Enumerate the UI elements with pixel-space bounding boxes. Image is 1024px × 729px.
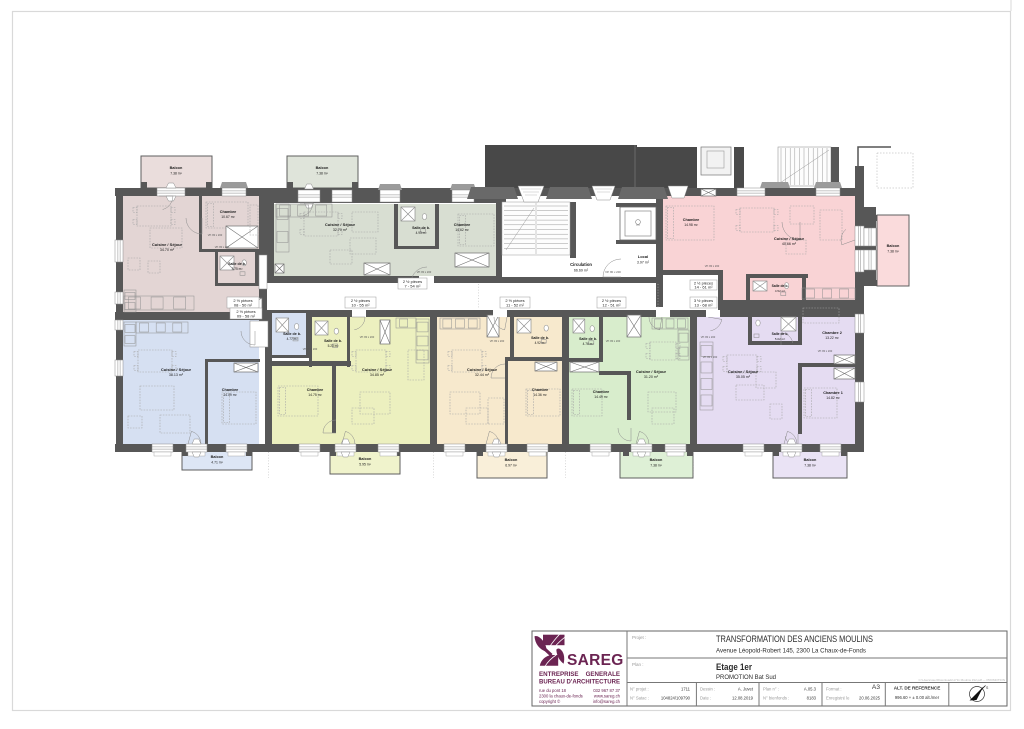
svg-text:VP. 80 x 200: VP. 80 x 200 (705, 264, 720, 268)
svg-text:Date :: Date : (700, 696, 711, 701)
svg-text:1711: 1711 (681, 687, 691, 692)
svg-text:14.62 m²: 14.62 m² (455, 228, 469, 232)
svg-text:Chambre: Chambre (307, 388, 323, 392)
svg-text:996.60 + ± 0.00 alt./mer: 996.60 + ± 0.00 alt./mer (895, 695, 940, 700)
svg-text:Cuisine / Séjour: Cuisine / Séjour (467, 367, 498, 372)
svg-text:3.75 m²: 3.75 m² (232, 267, 243, 271)
svg-text:Salle de b.: Salle de b. (772, 332, 789, 336)
svg-text:Chambre: Chambre (683, 218, 699, 222)
svg-text:Plan n° :: Plan n° : (763, 687, 779, 692)
svg-text:VP. 80 x 200: VP. 80 x 200 (215, 245, 230, 249)
svg-text:Circulation: Circulation (570, 262, 592, 267)
svg-text:PROMOTION Bat Sud: PROMOTION Bat Sud (716, 674, 776, 681)
svg-text:14 - 61 m²: 14 - 61 m² (694, 285, 713, 290)
svg-text:Chambre: Chambre (220, 210, 236, 214)
svg-text:4.93 m²: 4.93 m² (416, 231, 427, 235)
svg-text:Balcon: Balcon (316, 166, 329, 170)
svg-text:N° bienfonds :: N° bienfonds : (763, 696, 789, 701)
svg-text:ENTREPRISE: ENTREPRISE (539, 671, 579, 678)
svg-text:Salle de b.: Salle de b. (772, 284, 789, 288)
svg-text:10 - 55 m²: 10 - 55 m² (351, 303, 370, 308)
svg-text:12 - 51 m²: 12 - 51 m² (602, 303, 621, 308)
svg-text:N° projet :: N° projet : (630, 687, 649, 692)
svg-text:104824/109790: 104824/109790 (661, 696, 691, 701)
svg-text:Chambre: Chambre (532, 388, 548, 392)
svg-text:N° Satac :: N° Satac : (630, 696, 649, 701)
svg-text:Salle de b.: Salle de b. (579, 337, 597, 341)
svg-text:Balcon: Balcon (505, 458, 518, 462)
svg-text:Salle de b.: Salle de b. (228, 262, 246, 266)
svg-text:7.38 m²: 7.38 m² (804, 464, 816, 468)
svg-text:08 - 50 m²: 08 - 50 m² (234, 303, 253, 308)
svg-text:Balcon: Balcon (887, 244, 900, 248)
svg-text:4.52 m²: 4.52 m² (775, 289, 785, 293)
svg-text:Cuisine / Séjour: Cuisine / Séjour (728, 369, 759, 374)
svg-text:info@sareg.ch: info@sareg.ch (593, 699, 621, 704)
svg-text:Salle de b.: Salle de b. (531, 336, 549, 340)
svg-text:Chambre: Chambre (454, 223, 470, 227)
svg-text:Cuisine / Séjour: Cuisine / Séjour (636, 369, 667, 374)
svg-text:4.76 m²: 4.76 m² (583, 342, 594, 346)
svg-text:Balcon: Balcon (650, 458, 663, 462)
svg-text:14.49 m²: 14.49 m² (594, 395, 608, 399)
svg-text:Avenue Léopold-Robert 145, 230: Avenue Léopold-Robert 145, 2300 La Chaux… (716, 648, 867, 655)
svg-text:C:\Users\user\Downloads\1711 M: C:\Users\user\Downloads\1711 Moulins #12… (919, 678, 1005, 682)
svg-text:VP. 80 x 200: VP. 80 x 200 (703, 355, 718, 359)
svg-text:Cuisine / Séjour: Cuisine / Séjour (152, 242, 183, 247)
svg-text:VP. 80 x 200: VP. 80 x 200 (417, 270, 432, 274)
svg-text:Chambre 2: Chambre 2 (822, 331, 842, 335)
svg-text:7.38 m²: 7.38 m² (316, 172, 328, 176)
svg-text:4.92 m²: 4.92 m² (535, 341, 546, 345)
svg-text:3.97 m²: 3.97 m² (637, 261, 650, 265)
svg-text:14.98 m²: 14.98 m² (684, 223, 698, 227)
svg-text:4.71 m²: 4.71 m² (211, 461, 223, 465)
svg-text:VP. 80 x 200: VP. 80 x 200 (818, 349, 833, 353)
svg-text:Salle de b.: Salle de b. (412, 226, 430, 230)
svg-text:Enregistré le: Enregistré le (826, 696, 850, 701)
svg-text:31.20 m²: 31.20 m² (644, 375, 659, 379)
svg-text:A.05.3: A.05.3 (804, 687, 817, 692)
svg-text:Cuisine / Séjour: Cuisine / Séjour (362, 367, 393, 372)
svg-text:5.95 m²: 5.95 m² (359, 463, 371, 467)
svg-text:Balcon: Balcon (211, 455, 224, 459)
svg-text:6.97 m²: 6.97 m² (505, 464, 517, 468)
svg-text:VP. 80 x 200: VP. 80 x 200 (303, 347, 318, 351)
svg-text:35.05 m²: 35.05 m² (736, 375, 751, 379)
svg-text:rue du pont 18: rue du pont 18 (539, 688, 567, 693)
svg-text:VP. 80 x 200: VP. 80 x 200 (606, 339, 621, 343)
svg-text:Chambre: Chambre (222, 388, 238, 392)
svg-text:4.77 m²: 4.77 m² (287, 337, 298, 341)
svg-text:Etage 1er: Etage 1er (716, 662, 752, 672)
svg-text:Balcon: Balcon (359, 457, 372, 461)
svg-text:20.06.2025: 20.06.2025 (859, 696, 881, 701)
svg-text:032 967 87 37: 032 967 87 37 (593, 688, 620, 693)
svg-text:Balcon: Balcon (804, 458, 817, 462)
svg-text:Format :: Format : (826, 687, 842, 692)
svg-text:Chambre 1: Chambre 1 (823, 391, 843, 395)
svg-text:2300 la chaux-de-fonds: 2300 la chaux-de-fonds (539, 693, 583, 698)
svg-text:Cuisine / Séjour: Cuisine / Séjour (161, 367, 192, 372)
svg-text:Balcon: Balcon (170, 166, 183, 170)
svg-text:14.82 m²: 14.82 m² (826, 396, 840, 400)
svg-text:Cuisine / Séjour: Cuisine / Séjour (774, 236, 805, 241)
svg-text:BUREAU D'ARCHITECTURE: BUREAU D'ARCHITECTURE (539, 679, 620, 686)
svg-text:copyright ©: copyright © (539, 699, 561, 704)
svg-text:11 - 52 m²: 11 - 52 m² (506, 303, 525, 308)
svg-text:7.38 m²: 7.38 m² (170, 172, 182, 176)
svg-text:A3: A3 (872, 684, 880, 691)
svg-text:13.22 m²: 13.22 m² (825, 336, 839, 340)
svg-text:8183: 8183 (807, 696, 817, 701)
svg-text:Salle de b.: Salle de b. (283, 332, 301, 336)
svg-text:38.13 m²: 38.13 m² (169, 373, 184, 377)
svg-text:Salle de b.: Salle de b. (324, 339, 342, 343)
svg-text:Local: Local (638, 254, 648, 259)
svg-text:14.75 m²: 14.75 m² (308, 393, 322, 397)
svg-text:VP. 80 x 200: VP. 80 x 200 (701, 335, 716, 339)
svg-text:13 - 68 m²: 13 - 68 m² (694, 303, 713, 308)
svg-text:VP. 80 x 200: VP. 80 x 200 (490, 339, 505, 343)
svg-text:40.66 m²: 40.66 m² (782, 242, 797, 246)
svg-text:A. Juvet: A. Juvet (738, 687, 754, 692)
svg-text:14.09 m²: 14.09 m² (223, 393, 237, 397)
svg-text:12.08.2019: 12.08.2019 (732, 696, 754, 701)
svg-text:www.sareg.ch: www.sareg.ch (594, 693, 621, 698)
svg-text:09 - 58 m²: 09 - 58 m² (237, 314, 256, 319)
svg-text:5.02 m²: 5.02 m² (775, 337, 785, 341)
svg-text:GENERALE: GENERALE (586, 671, 620, 678)
svg-text:34.70 m²: 34.70 m² (160, 248, 175, 252)
svg-text:Projet :: Projet : (632, 635, 646, 640)
svg-text:7.38 m²: 7.38 m² (887, 250, 899, 254)
svg-text:10.67 m²: 10.67 m² (221, 215, 235, 219)
svg-text:14.36 m²: 14.36 m² (533, 393, 547, 397)
svg-text:34.85 m²: 34.85 m² (370, 373, 385, 377)
svg-text:Dessin :: Dessin : (700, 687, 715, 692)
svg-text:66.69 m²: 66.69 m² (574, 269, 589, 273)
svg-text:7 - 54 m²: 7 - 54 m² (404, 284, 421, 289)
svg-text:VP. 80 x 200: VP. 80 x 200 (605, 270, 621, 274)
svg-text:Cuisine / Séjour: Cuisine / Séjour (325, 222, 356, 227)
svg-text:VP. 80 x 200: VP. 80 x 200 (360, 335, 375, 339)
svg-text:Chambre: Chambre (593, 390, 609, 394)
svg-text:TRANSFORMATION DES ANCIENS MOU: TRANSFORMATION DES ANCIENS MOULINS (716, 634, 873, 644)
svg-text:7.38 m²: 7.38 m² (650, 464, 662, 468)
svg-text:ALT. DE REFERENCE: ALT. DE REFERENCE (894, 686, 941, 691)
svg-text:Plan :: Plan : (632, 662, 644, 667)
svg-text:32.70 m²: 32.70 m² (333, 228, 348, 232)
svg-text:5.23 m²: 5.23 m² (328, 344, 339, 348)
svg-text:32.44 m²: 32.44 m² (475, 373, 490, 377)
svg-text:VP. 80 x 200: VP. 80 x 200 (208, 233, 223, 237)
svg-text:SAREG: SAREG (567, 652, 624, 669)
